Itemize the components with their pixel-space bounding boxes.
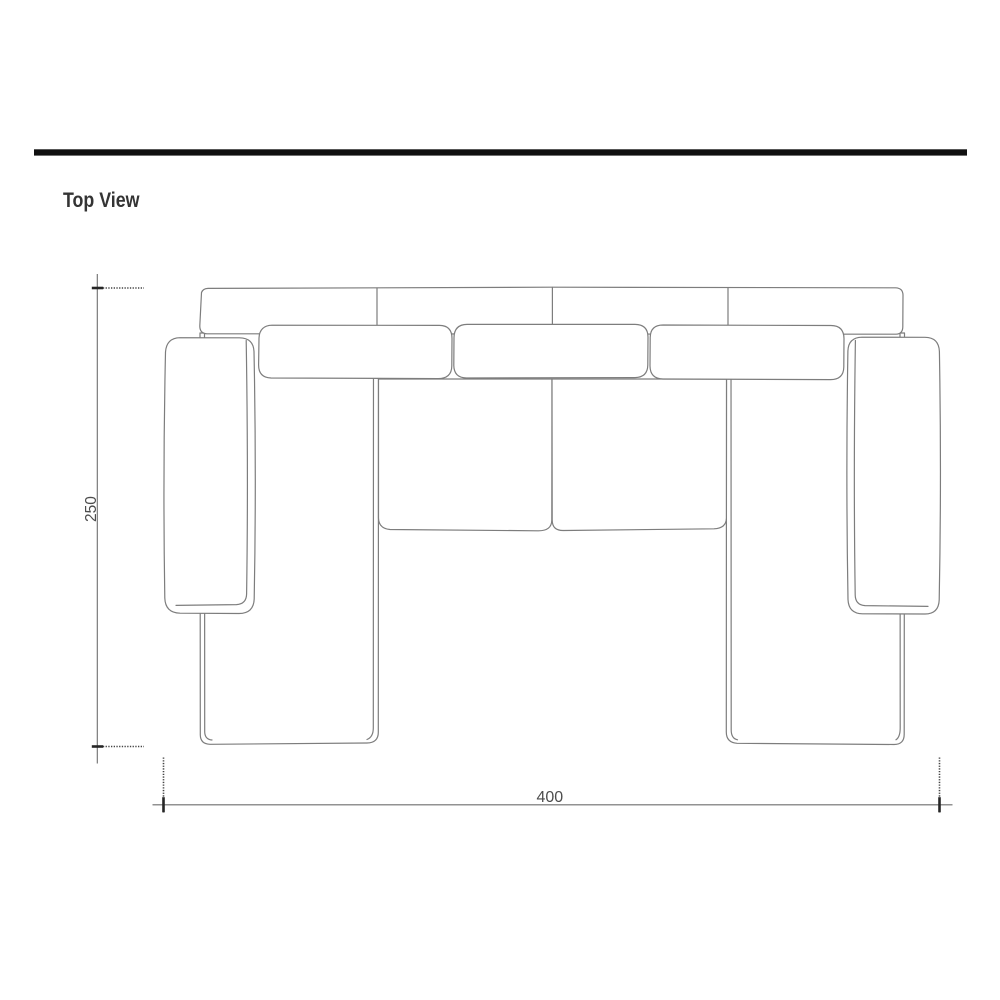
svg-text:250: 250 <box>83 496 100 522</box>
svg-text:400: 400 <box>536 789 563 806</box>
svg-text:Top View: Top View <box>63 189 140 212</box>
